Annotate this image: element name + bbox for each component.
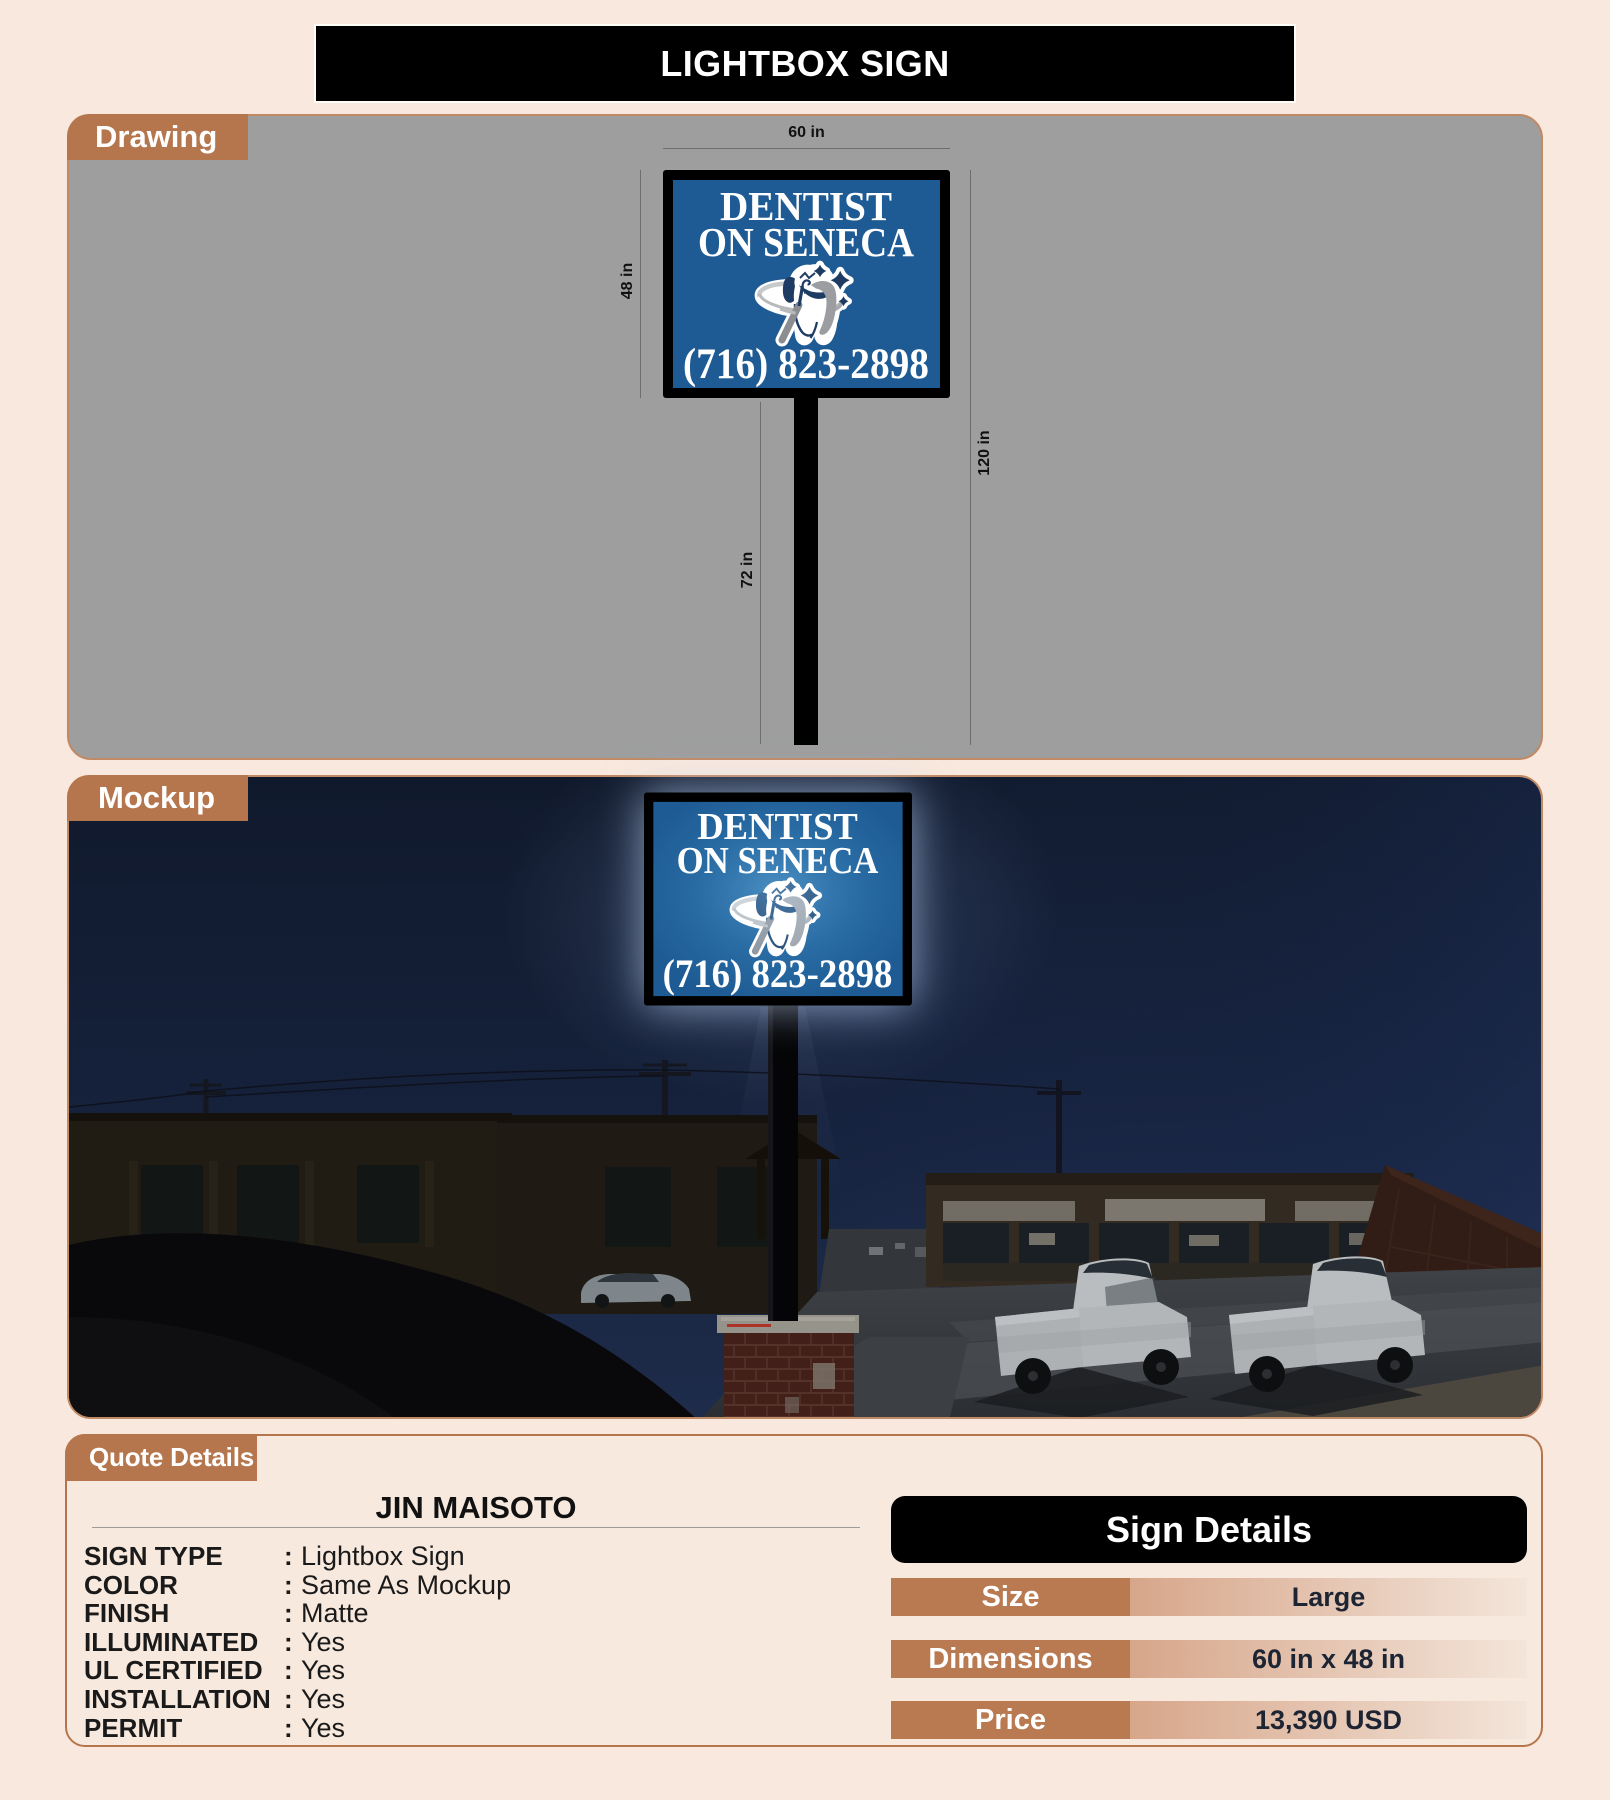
svg-text:ON SENECA: ON SENECA	[698, 219, 914, 265]
svg-text:(716) 823-2898: (716) 823-2898	[683, 341, 929, 388]
